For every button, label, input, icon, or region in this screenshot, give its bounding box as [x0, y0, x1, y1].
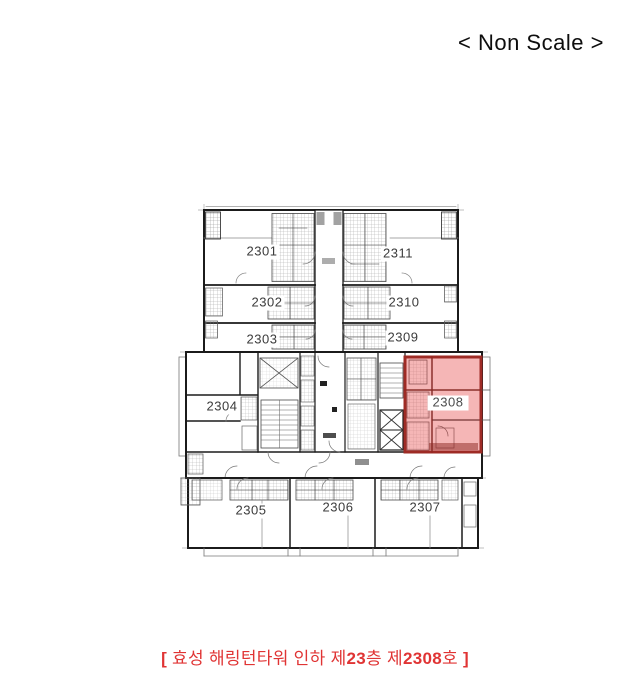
highlighted-unit-label: 2308: [428, 396, 469, 411]
unit-label: 2311: [381, 247, 415, 262]
unit-label: 2303: [245, 333, 280, 348]
page: < Non Scale >: [0, 0, 630, 700]
caption-floor-number: 23: [347, 649, 367, 668]
unit-label: 2304: [205, 400, 240, 415]
caption-unit-suffix: 호: [442, 649, 463, 668]
bottom-wing: [181, 478, 478, 556]
unit-label: 2306: [321, 501, 356, 516]
caption: [ 효성 해링턴타워 인하 제23층 제2308호 ]: [0, 644, 630, 669]
unit-label: 2301: [245, 245, 280, 260]
caption-close-bracket: ]: [463, 649, 469, 668]
caption-building-text: 효성 해링턴타워 인하 제: [172, 649, 346, 668]
caption-open-bracket: [: [161, 649, 172, 668]
unit-label: 2309: [386, 331, 421, 346]
unit-label: 2310: [387, 296, 422, 311]
unit-label: 2305: [234, 504, 269, 519]
unit-label: 2302: [250, 296, 285, 311]
scale-note: < Non Scale >: [458, 30, 604, 56]
caption-floor-suffix: 층 제: [366, 649, 403, 668]
caption-unit-number: 2308: [403, 649, 442, 668]
unit-label: 2307: [408, 501, 443, 516]
